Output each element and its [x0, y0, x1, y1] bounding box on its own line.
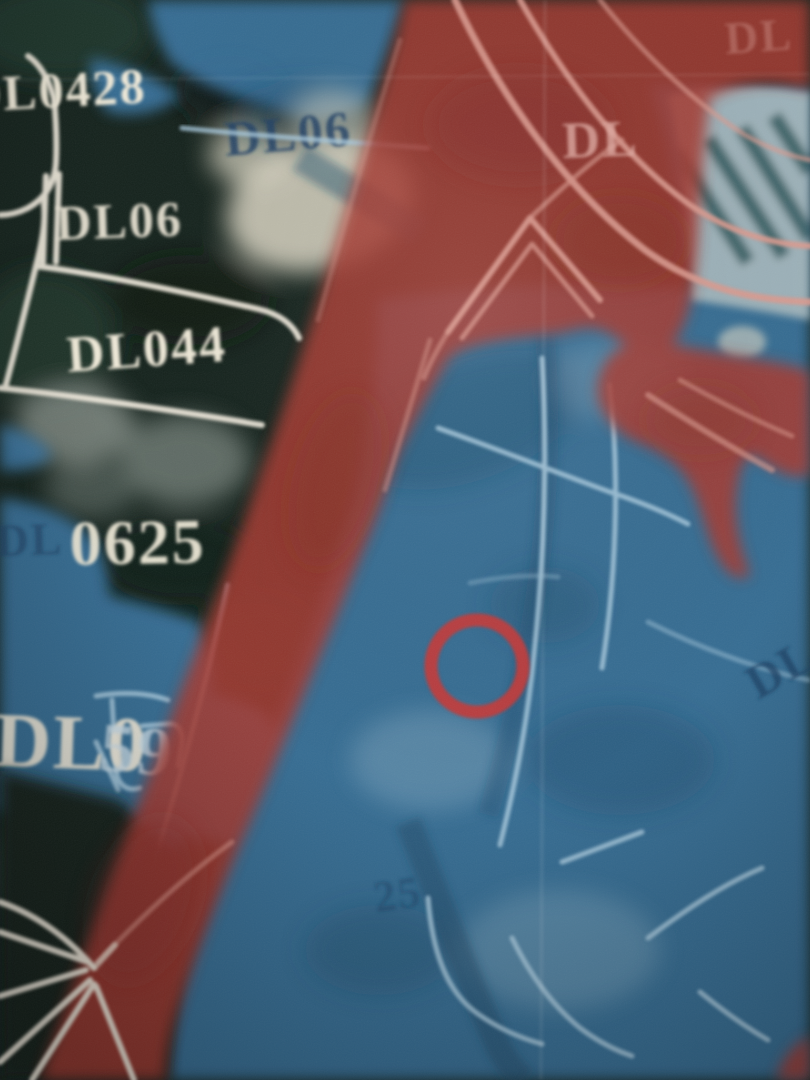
map-photo: DL06 DL DL0 59 DL 25 DL DL [0, 0, 810, 1080]
zoning-map-canvas: DL06 DL DL0 59 DL 25 DL DL [0, 0, 810, 1080]
photo-vignette [0, 0, 810, 1080]
